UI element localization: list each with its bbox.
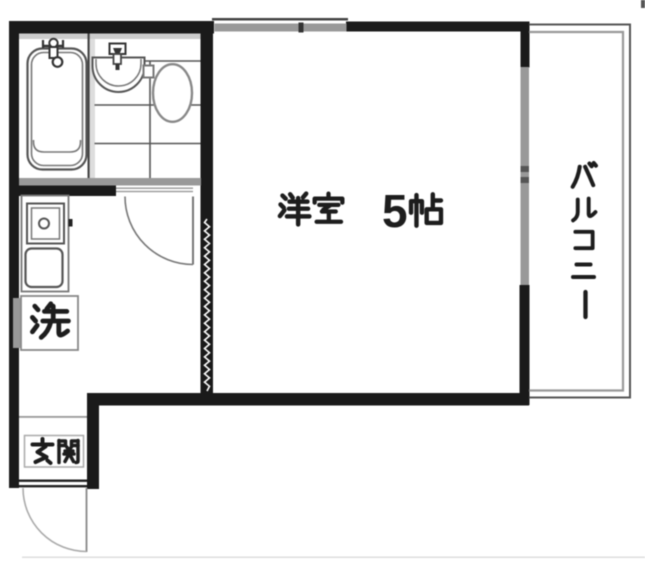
svg-text:5: 5 — [382, 185, 408, 237]
